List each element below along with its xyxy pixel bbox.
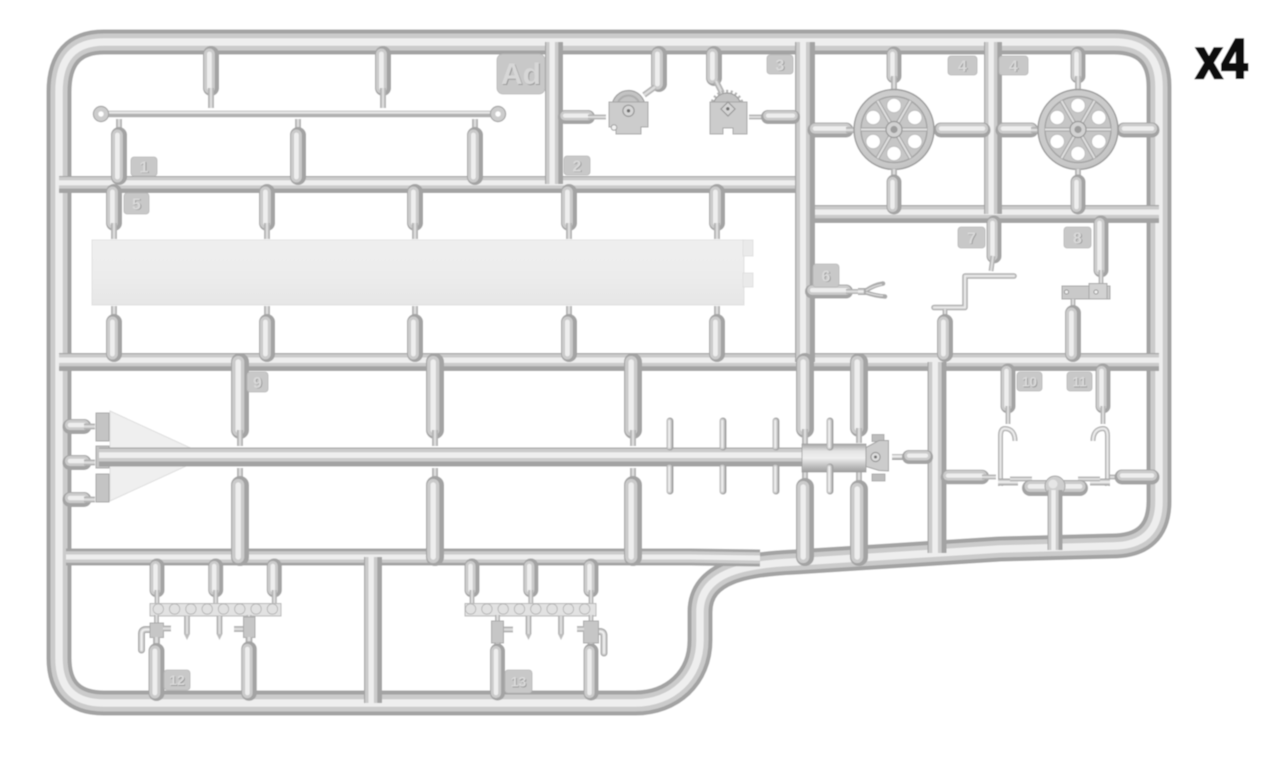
svg-text:4: 4 [958, 58, 967, 75]
svg-text:9: 9 [253, 375, 262, 392]
svg-text:13: 13 [511, 674, 527, 690]
svg-text:4: 4 [1009, 58, 1018, 75]
svg-text:10: 10 [1022, 374, 1037, 389]
svg-text:6: 6 [822, 268, 831, 285]
svg-text:2: 2 [573, 158, 582, 175]
svg-text:3: 3 [776, 57, 785, 74]
svg-text:7: 7 [967, 230, 976, 247]
svg-text:5: 5 [132, 196, 141, 213]
svg-text:8: 8 [1073, 230, 1082, 247]
svg-text:Ad: Ad [501, 58, 541, 91]
svg-text:12: 12 [169, 672, 185, 688]
svg-text:11: 11 [1072, 374, 1087, 389]
svg-text:1: 1 [140, 159, 149, 176]
svg-text:x4: x4 [1196, 27, 1248, 90]
